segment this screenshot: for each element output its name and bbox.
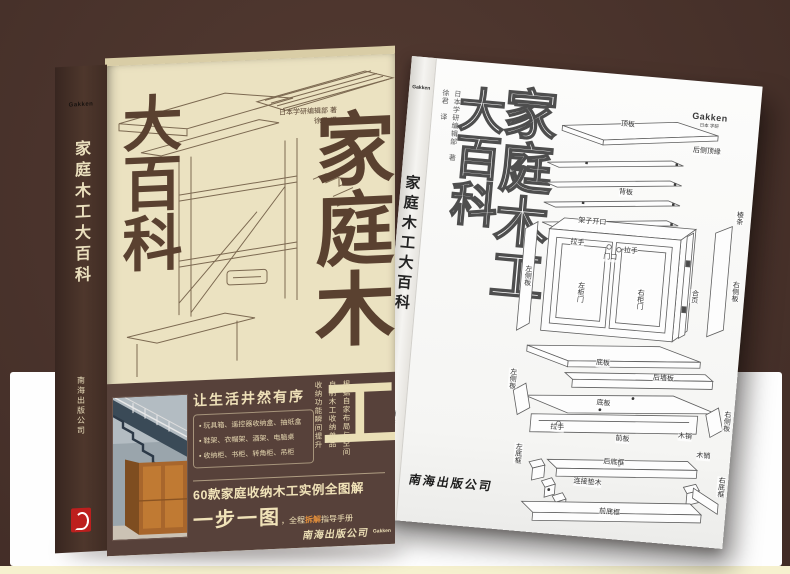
diagram-label: 右底框 [716, 476, 727, 498]
diagram-label: 顶板 [620, 120, 635, 129]
vertical-note: 收纳功能瞬间提升 [311, 381, 325, 474]
left-book-spine: Gakken 家庭木工大百科 南海出版公司 [55, 65, 107, 554]
photo-illustration [113, 395, 187, 540]
spine-title: 家庭木工大百科 [69, 139, 93, 287]
diagram-label: 木销 [696, 452, 711, 461]
slogan-accent: 拆解 [305, 515, 321, 525]
vertical-note: 自制木工收纳单品 [325, 380, 339, 473]
bottom-cream-strip [0, 566, 790, 574]
diagram-label: 拉手 [550, 423, 565, 432]
diagram-label: 拉手 [623, 247, 638, 256]
cover-title-sub: 大百科 [441, 84, 504, 229]
diagram-label: 前底框 [599, 508, 621, 518]
slogan-mid: ，全程 [281, 516, 305, 526]
publisher-row: 南海出版公司 Gakken [303, 523, 391, 542]
diagram-label: 左底框 [513, 442, 524, 464]
red-publisher-seal-icon [71, 507, 91, 532]
diagram-label: 门口 [603, 253, 618, 262]
diagram-label: 底板 [596, 359, 611, 368]
diagram-label: 后墙板 [652, 374, 674, 384]
diagram-label: 背板 [619, 189, 634, 198]
slogan-big: 一步一图 [193, 507, 281, 533]
publisher-calligraphy: 南海出版公司 [302, 524, 371, 542]
product-shot: Gakken 家庭木工大百科 南海出版公司 日本学研编辑部 著 徐君 译 家庭木… [0, 0, 790, 574]
left-book-front-cover: 日本学研编辑部 著 徐君 译 家庭木 大百科 工 [107, 54, 395, 557]
diagram-label: 合页 [690, 289, 700, 304]
cover-title-main: 家庭木 [307, 106, 391, 350]
left-book-3d: Gakken 家庭木工大百科 南海出版公司 [55, 50, 395, 558]
diagram-label: 底板 [596, 399, 611, 408]
diagram-label: 前板 [615, 435, 630, 444]
vertical-notes: 根据自家布局与空间 自制木工收纳单品 收纳功能瞬间提升 [311, 380, 353, 474]
panel-headline: 让生活井然有序 [193, 386, 305, 411]
slogan-tail: 指导手册 [321, 514, 353, 524]
diagram-label: 右侧板 [721, 410, 732, 432]
diagram-label: 拉手 [570, 239, 585, 248]
diagram-label: 左侧板 [507, 368, 518, 390]
gakken-logo: Gakken [409, 84, 433, 92]
feature-list: 玩具箱、遥控器收纳盒、抽纸盒 鞋架、衣帽架、酒架、电脑桌 收纳柜、书柜、转角柜、… [193, 409, 314, 468]
diagram-label: 左侧板 [522, 265, 533, 287]
diagram-label: 棱条 [735, 211, 745, 226]
gakken-logo: Gakken [373, 527, 391, 534]
cover-bottom-panel: 工 [107, 372, 395, 557]
understairs-storage-photo [113, 395, 187, 540]
cover-title-sub: 大百科 [115, 91, 179, 274]
diagram-label: 后底框 [603, 458, 625, 468]
spine-publisher: 南海出版公司 [76, 376, 87, 437]
right-book-cover: Gakken 家庭木工大百科 南海出版公司 日本学研编辑部 著 徐君 译 家庭木… [372, 56, 763, 549]
diagram-label: 右柜门 [635, 288, 646, 310]
vertical-note: 根据自家布局与空间 [339, 380, 353, 473]
diagram-label: 左柜门 [575, 281, 586, 303]
gakken-logo: Gakken [55, 101, 107, 110]
diagram-label: 右侧板 [730, 281, 741, 303]
exploded-cabinet-diagram: 顶板后侧顶缘背板架子开口门口棱条左侧板拉手拉手左柜门右柜门合页右侧板底板后墙板左… [493, 106, 757, 544]
spine-title: 家庭木工大百科 [391, 174, 424, 315]
publisher-calligraphy: 南海出版公司 [407, 470, 495, 494]
diagram-label: 木销 [677, 433, 692, 442]
